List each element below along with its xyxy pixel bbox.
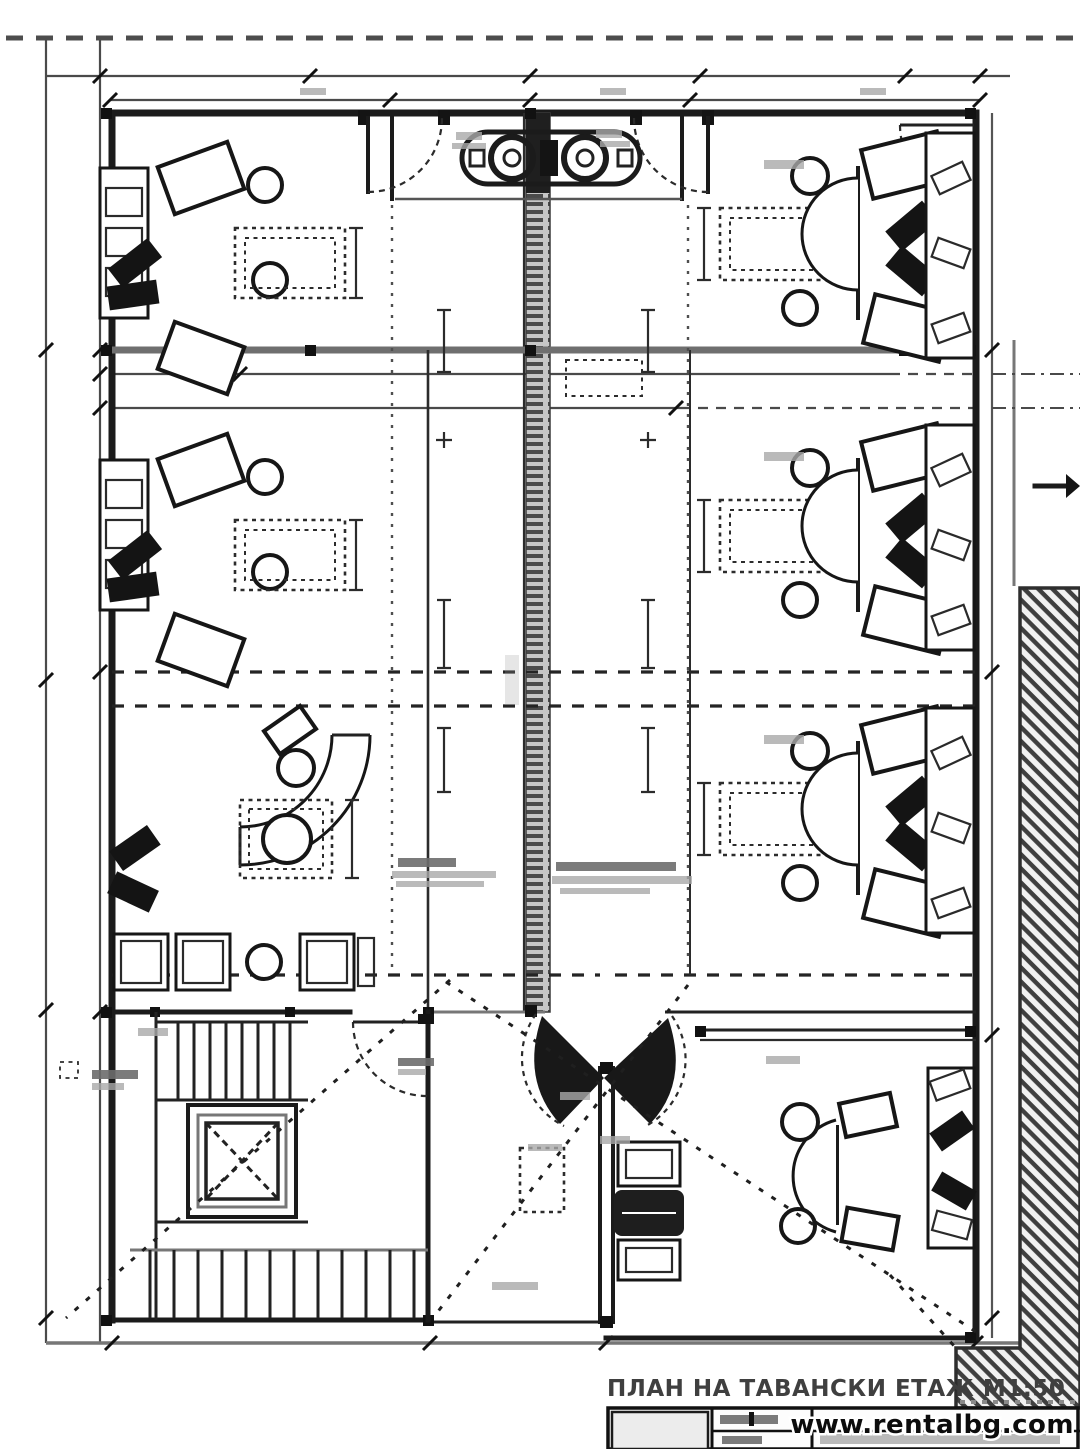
logo-capsule xyxy=(462,132,640,184)
watermark-text: www.rentalbg.com xyxy=(790,1410,1074,1440)
elevator-shaft xyxy=(188,1105,296,1217)
office-cluster-lower-right xyxy=(697,706,974,936)
reception-cluster xyxy=(107,706,374,990)
copier-stack xyxy=(614,1142,684,1280)
floor-plan-scan: ПЛАН НА ТАВАНСКИ ЕТАЖ М1:50 www.rentalbg… xyxy=(0,0,1080,1449)
floor-plan-canvas: ПЛАН НА ТАВАНСКИ ЕТАЖ М1:50 www.rentalbg… xyxy=(0,0,1080,1449)
office-cluster-mid-right xyxy=(697,423,974,653)
illegible-annotations xyxy=(60,88,886,1290)
seat-row xyxy=(114,934,374,990)
office-cluster-top-left xyxy=(100,142,363,394)
lower-flight-treads xyxy=(150,1250,414,1318)
stair-core xyxy=(130,1012,434,1320)
watermark: www.rentalbg.com xyxy=(790,1410,1074,1440)
entrance-arrow xyxy=(1035,474,1080,498)
plan-title-text: ПЛАН НА ТАВАНСКИ ЕТАЖ М1:50 xyxy=(607,1376,1065,1402)
plan-title: ПЛАН НА ТАВАНСКИ ЕТАЖ М1:50 xyxy=(607,1376,1065,1402)
office-cluster-mid-left xyxy=(100,434,363,686)
title-block-logo-cell xyxy=(612,1412,708,1449)
central-corridor-wall xyxy=(524,113,550,1012)
roof-slope-diagonals xyxy=(66,980,976,1348)
upper-flight-treads xyxy=(178,1022,290,1100)
office-cluster-top-right xyxy=(697,131,974,361)
